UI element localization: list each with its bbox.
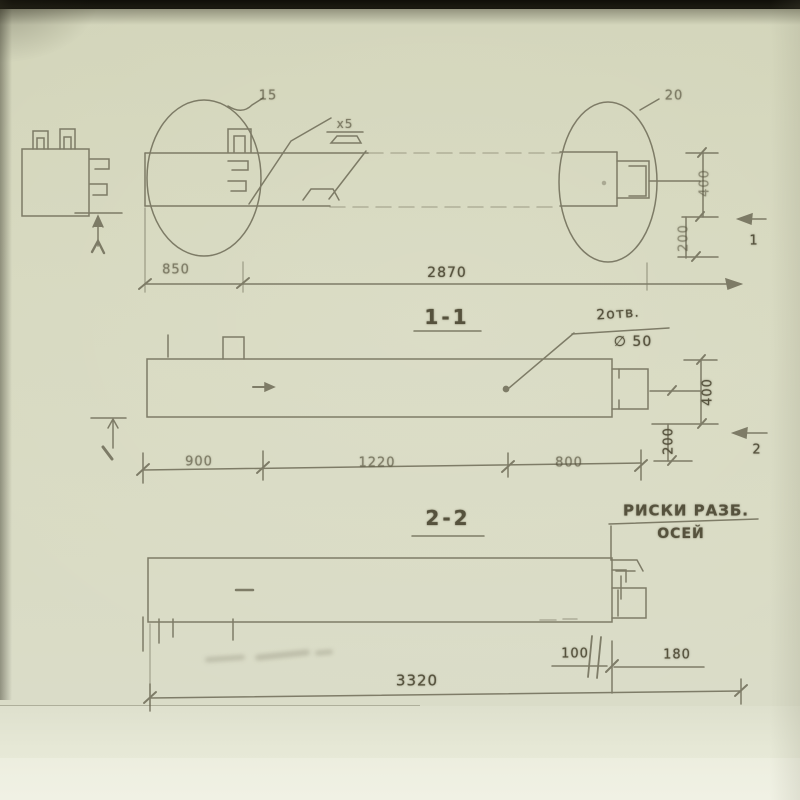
dim-400-elevation: 400 [699, 169, 712, 197]
cut-mark-1: 1 [749, 235, 758, 248]
section-1-1-title: 1-1 [424, 307, 469, 327]
dim-400-section: 400 [702, 378, 715, 406]
dim-200-section: 200 [663, 427, 676, 455]
axis-marks-note-line1: РИСКИ РАЗБ. [623, 504, 749, 519]
dim-2870: 2870 [427, 266, 467, 280]
dim-3320: 3320 [396, 674, 438, 689]
weld-note: х5 [337, 118, 354, 130]
dim-100: 100 [561, 648, 589, 661]
dim-180: 180 [663, 649, 691, 662]
dim-900: 900 [185, 456, 213, 469]
axis-marks-note-line2: ОСЕЙ [657, 527, 704, 541]
scanned-drawing-page: 15 20 х5 850 2870 400 200 1 1-1 2отв. ∅ … [0, 0, 800, 800]
dim-800: 800 [555, 457, 583, 470]
cut-mark-2: 2 [752, 444, 761, 457]
section-2-2-title: 2-2 [425, 508, 470, 528]
balloon-label-right: 20 [665, 90, 684, 103]
hole-note-diameter: ∅ 50 [614, 335, 652, 349]
balloon-label-left: 15 [259, 90, 278, 103]
dim-850: 850 [162, 264, 190, 277]
dim-1220: 1220 [358, 457, 395, 470]
dim-200-elevation: 200 [678, 224, 691, 252]
hole-note-count: 2отв. [596, 306, 640, 323]
